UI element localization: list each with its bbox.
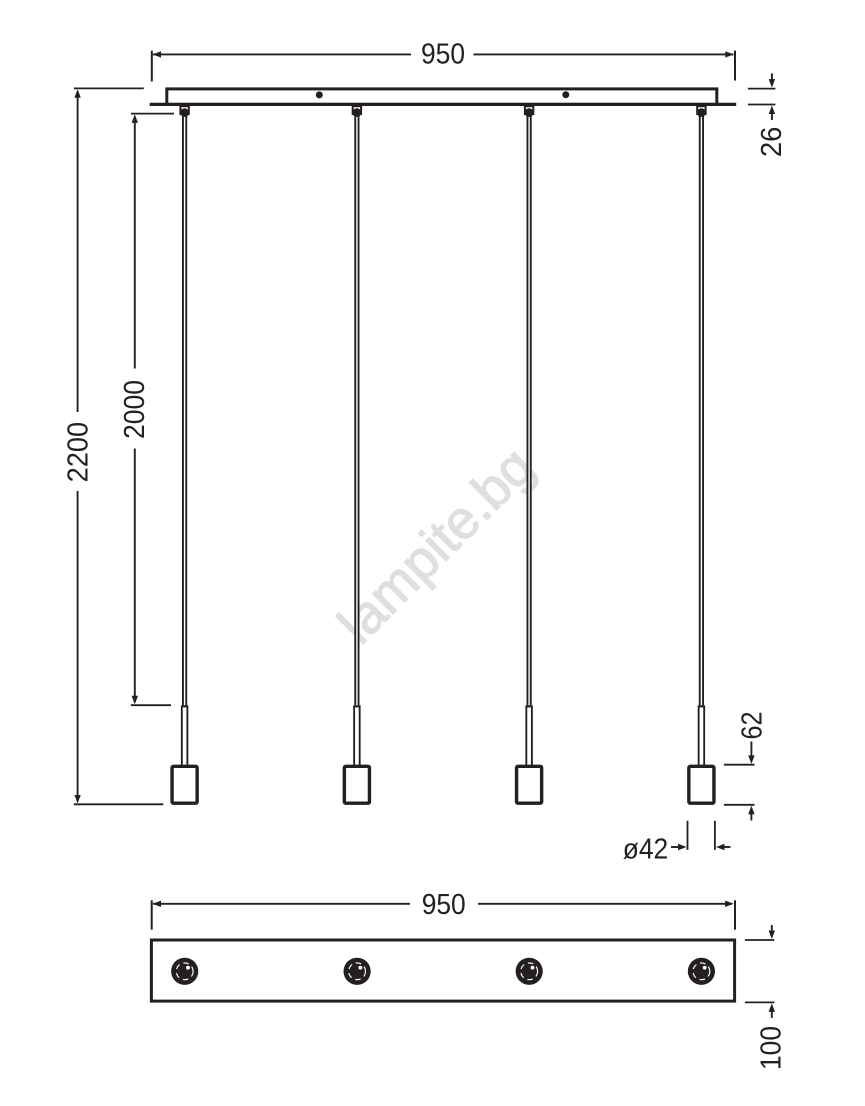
svg-text:950: 950 bbox=[422, 889, 466, 921]
svg-text:ø42: ø42 bbox=[623, 833, 669, 865]
svg-text:62: 62 bbox=[736, 712, 768, 740]
svg-text:26: 26 bbox=[756, 127, 788, 158]
svg-text:100: 100 bbox=[756, 1026, 788, 1070]
svg-text:2200: 2200 bbox=[62, 422, 94, 483]
svg-text:2000: 2000 bbox=[119, 380, 151, 439]
svg-text:950: 950 bbox=[421, 39, 465, 71]
